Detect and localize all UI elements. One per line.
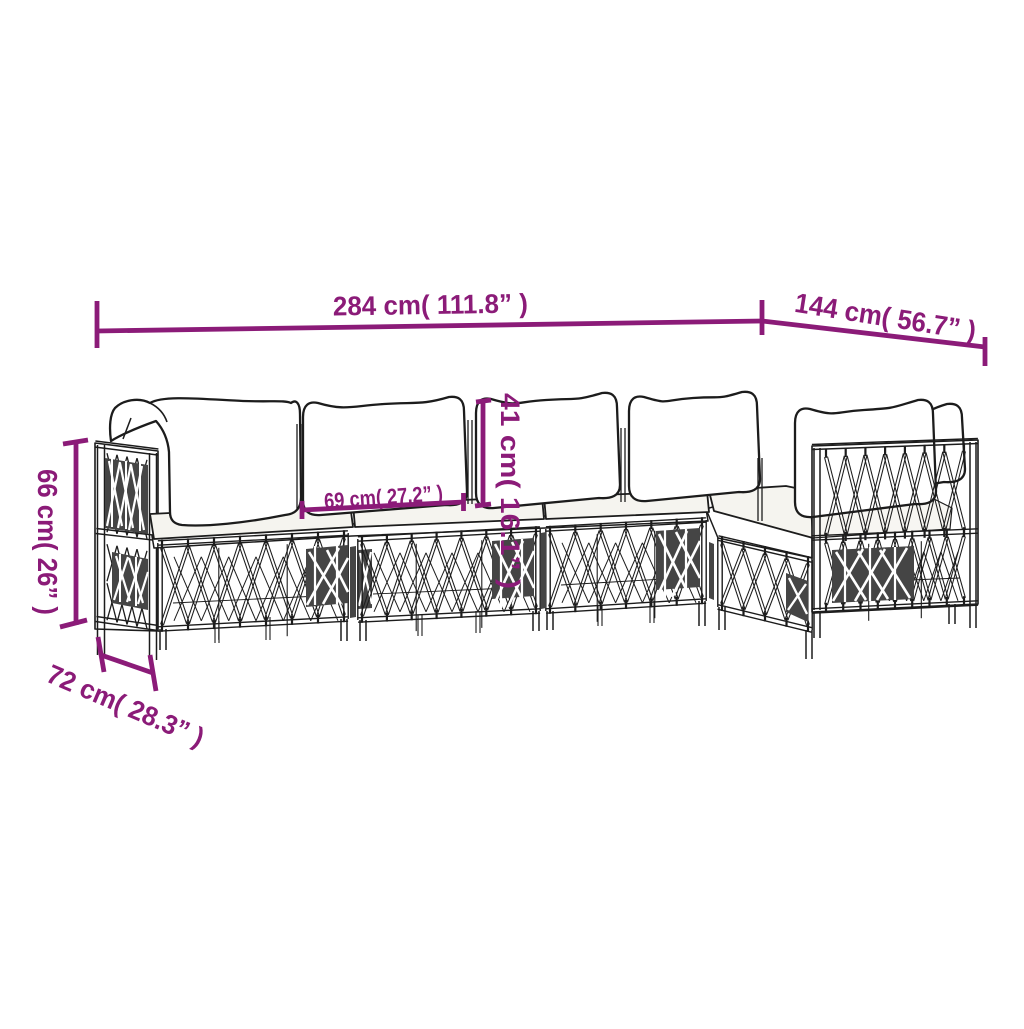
svg-text:66 cm( 26” ): 66 cm( 26” ) <box>32 469 63 615</box>
svg-text:284 cm( 111.8” ): 284 cm( 111.8” ) <box>333 288 528 321</box>
svg-text:41 cm( 16.1” ): 41 cm( 16.1” ) <box>495 393 525 589</box>
